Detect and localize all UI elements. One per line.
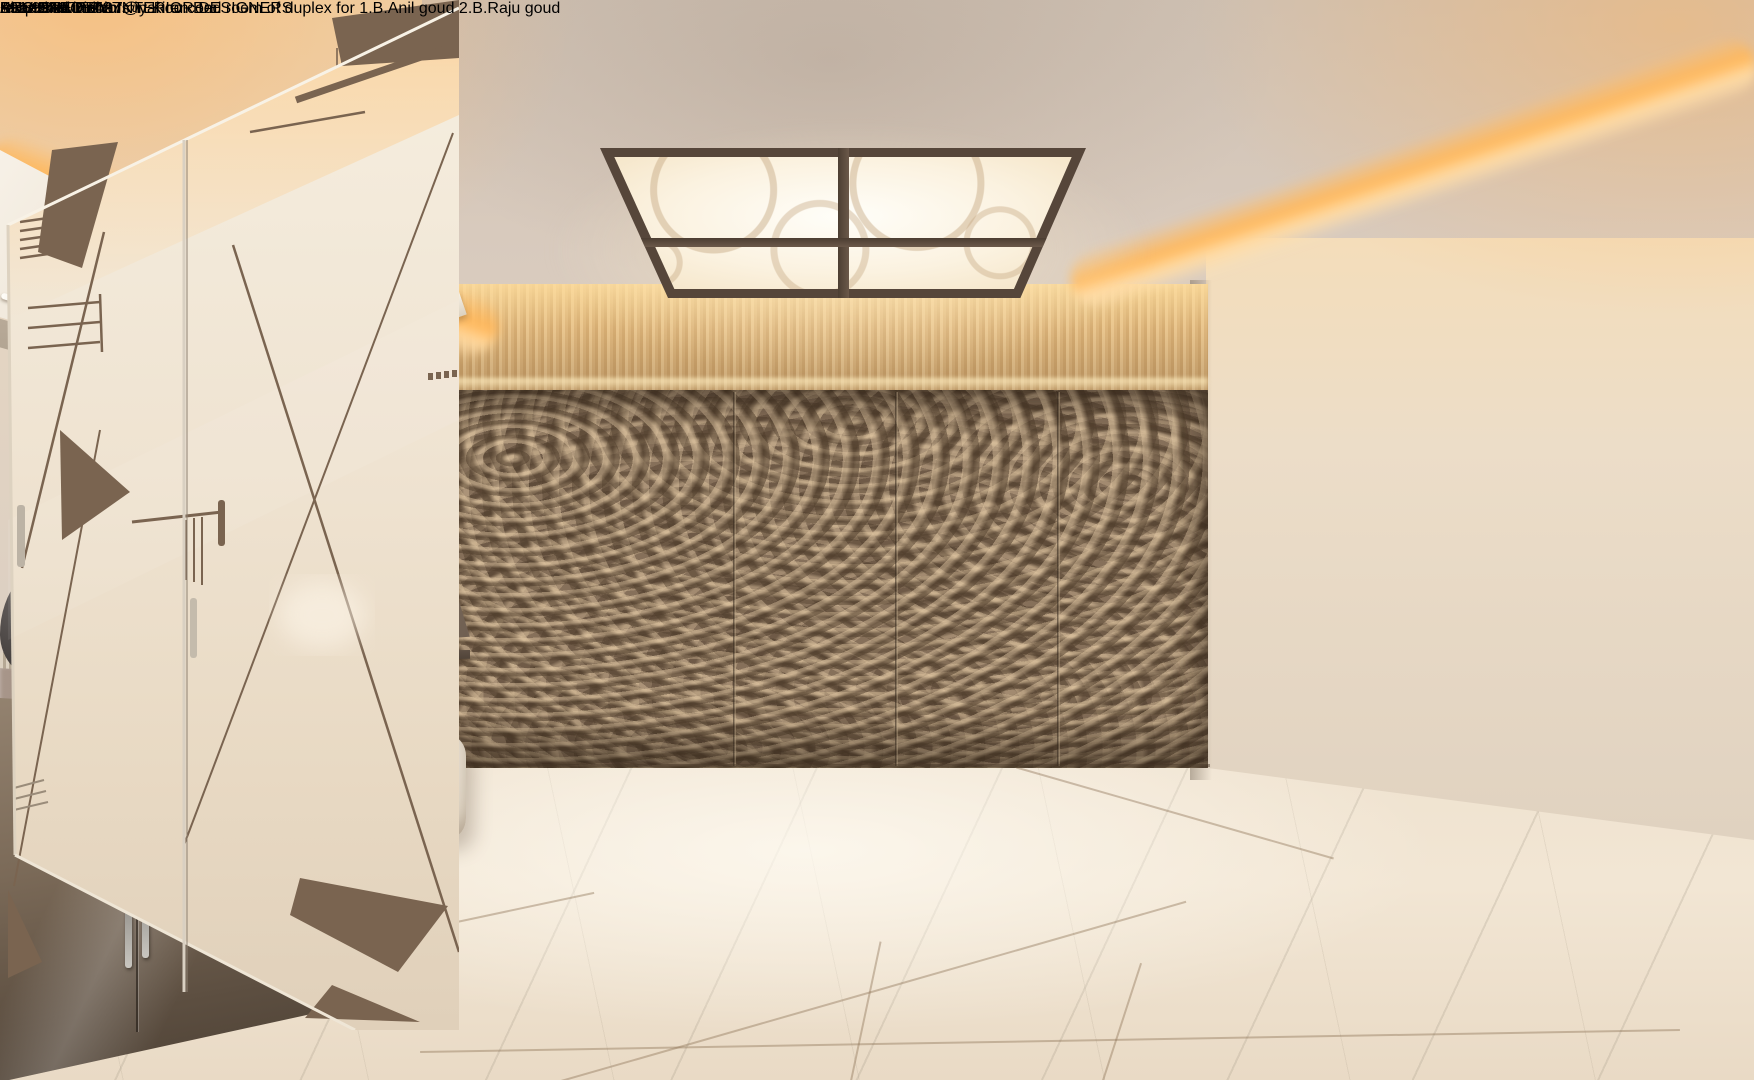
ceiling-light-fixture	[600, 148, 1086, 298]
email-address: ramesh-suvidha7@yahoo.com	[0, 0, 217, 18]
fixture-mullion	[600, 238, 1086, 247]
wall-panel-seam	[733, 392, 736, 766]
wardrobe-specular-highlight	[278, 581, 366, 649]
right-wall	[1206, 238, 1754, 840]
wardrobe-handle	[17, 505, 25, 567]
carved-wave-wall-panel	[418, 390, 1208, 768]
nightstand-left	[516, 722, 576, 774]
nightstand-right	[993, 722, 1073, 778]
fixture-mullion	[838, 148, 849, 298]
wardrobe-graphic	[0, 0, 459, 1030]
wall-panel-seam	[1057, 392, 1060, 766]
bedroom-render: Kiran Bed Room Proposed interiors in Kir…	[0, 0, 1754, 1080]
wardrobe-handle	[190, 598, 197, 658]
bedside-panel-left	[538, 622, 626, 732]
wall-panel-seam	[895, 392, 898, 766]
